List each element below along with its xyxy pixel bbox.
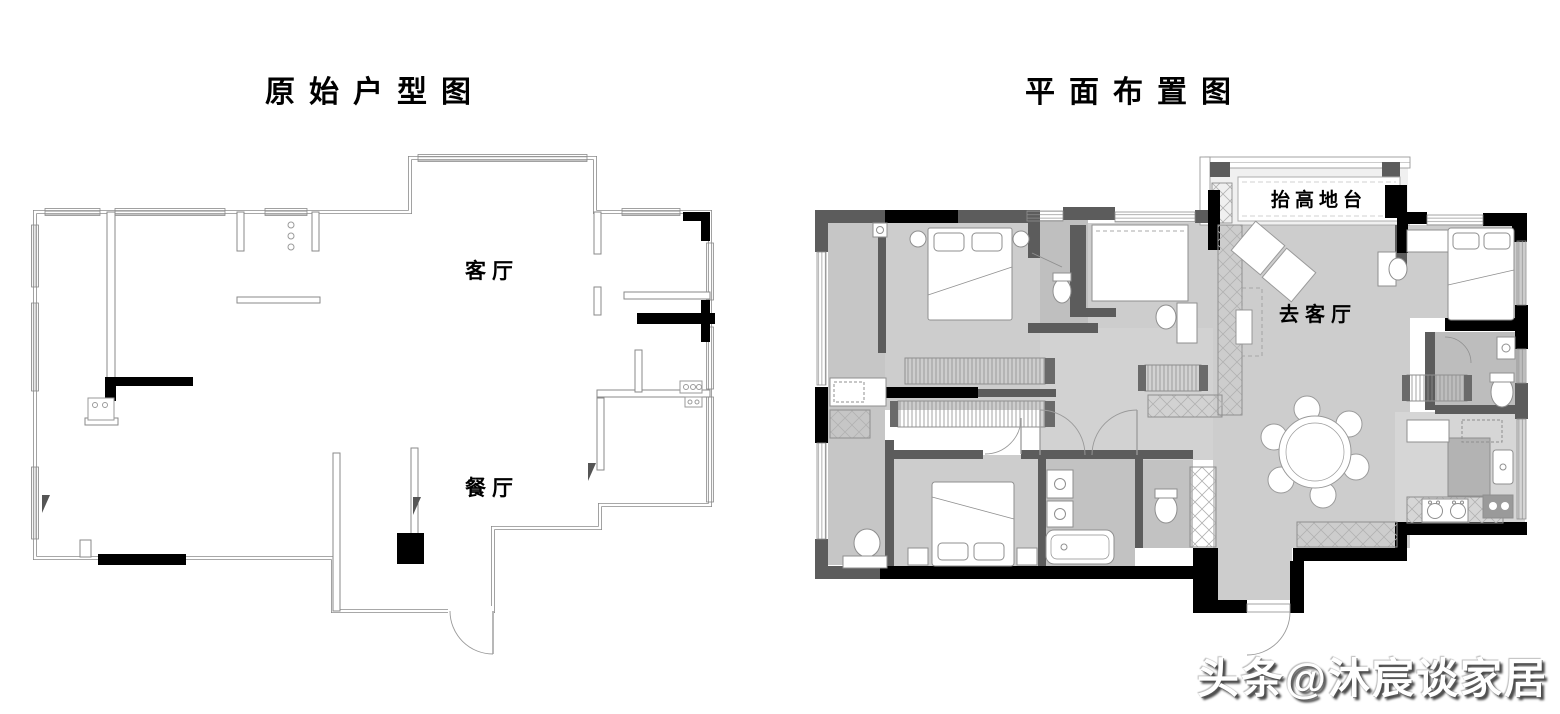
right-floor-plan-canvas: 抬高地台 [810, 145, 1540, 665]
wardrobe [905, 358, 1045, 384]
bench [1145, 365, 1201, 391]
page: 原始户型图 平面布置图 [0, 0, 1560, 714]
sink [1497, 337, 1515, 359]
left-plan-title: 原始户型图 [30, 72, 720, 114]
cabinet [830, 410, 870, 438]
cabinet [1148, 395, 1222, 417]
left-floor-plan-canvas: 客厅 餐厅 [30, 145, 720, 670]
guest-bed [1092, 225, 1188, 301]
shoe-cabinet [1297, 522, 1397, 547]
platform-label: 抬高地台 [1271, 188, 1367, 211]
kitchen-island [1448, 438, 1490, 496]
toilet [1155, 495, 1177, 523]
stool [854, 529, 880, 557]
wardrobe [898, 401, 1045, 427]
chair [1156, 305, 1176, 329]
sofa-bench [1407, 375, 1467, 401]
watermark: 头条@沐宸谈家居 [1197, 645, 1548, 706]
nightstand [1013, 231, 1029, 247]
desk [1177, 303, 1197, 343]
chair [1389, 258, 1407, 280]
dining-room-label: 餐厅 [465, 476, 519, 500]
nightstand [908, 548, 928, 565]
raised-platform: 抬高地台 [1200, 157, 1410, 225]
toilet [1053, 279, 1071, 303]
to-living-label: 去客厅 [1279, 302, 1357, 326]
living-room-label: 客厅 [465, 259, 519, 283]
nightstand [910, 231, 926, 247]
dresser [1407, 230, 1449, 252]
dresser [843, 556, 887, 568]
kitchen-sink [1493, 450, 1513, 484]
right-plan-title: 平面布置图 [810, 72, 1460, 114]
nightstand [1017, 548, 1037, 565]
sink [1047, 501, 1073, 527]
dining-table [1279, 416, 1351, 488]
cabinet [1190, 467, 1216, 547]
left-entry-door [448, 606, 494, 654]
sink [1047, 470, 1073, 498]
counter [1407, 420, 1449, 442]
